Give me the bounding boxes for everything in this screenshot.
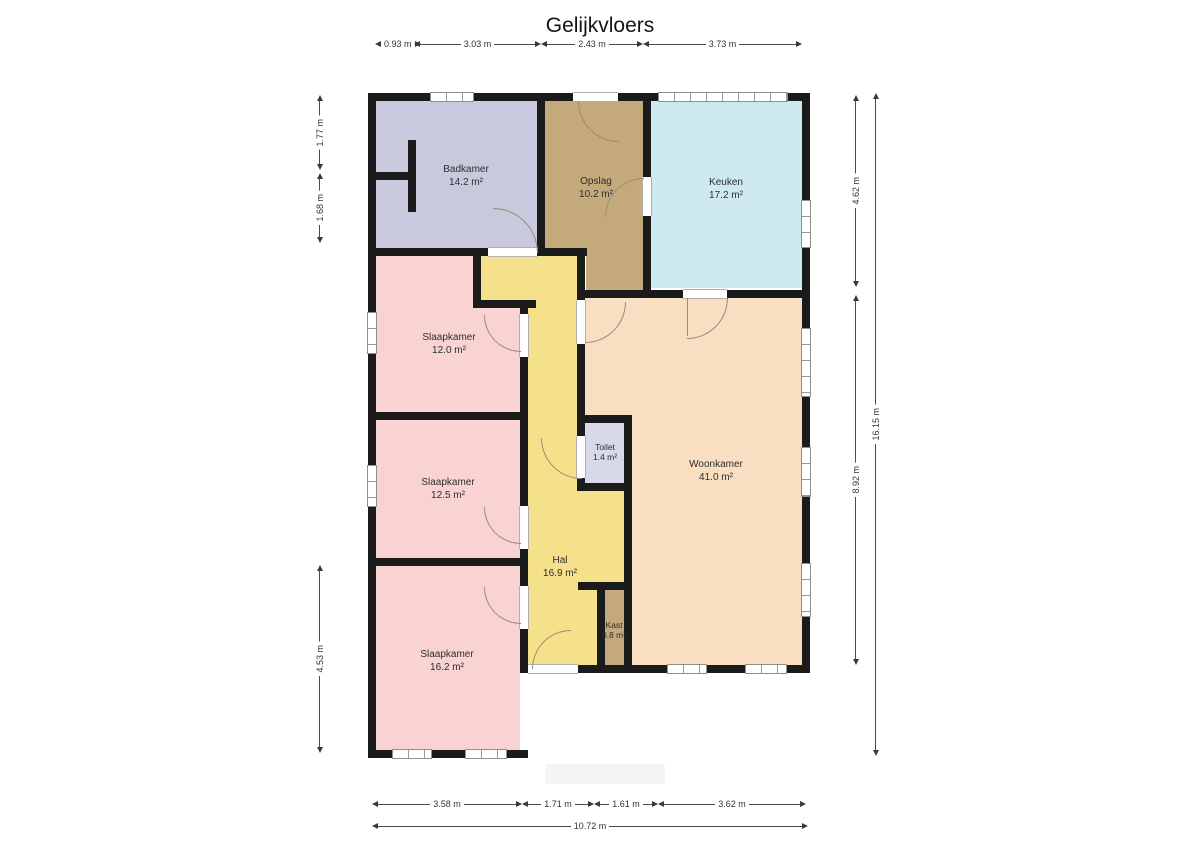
watermark bbox=[545, 764, 665, 784]
dimension-bottom-4: 3.62 m bbox=[658, 799, 806, 809]
door-panel-keuken-woonkamer bbox=[687, 298, 688, 336]
dimension-bottom-2: 1.71 m bbox=[522, 799, 594, 809]
dimension-top-4: 3.73 m bbox=[643, 39, 802, 49]
dimension-bottom-3: 1.61 m bbox=[594, 799, 658, 809]
room-label-opslag: Opslag 10.2 m² bbox=[579, 175, 613, 201]
room-label-slaapkamer-3: Slaapkamer 16.2 m² bbox=[420, 648, 473, 674]
dimension-top-3: 2.43 m bbox=[541, 39, 643, 49]
room-label-slaapkamer-1: Slaapkamer 12.0 m² bbox=[422, 331, 475, 357]
window-woonkamer-right-1 bbox=[801, 328, 811, 397]
room-area: 17.2 m² bbox=[709, 189, 743, 202]
window-slaapkamer3-bottom-2 bbox=[465, 749, 507, 759]
room-label-toilet: Toilet 1.4 m² bbox=[593, 442, 617, 462]
room-area: 10.2 m² bbox=[579, 188, 613, 201]
dimension-bottom-1: 3.58 m bbox=[372, 799, 522, 809]
room-slaapkamer-1 bbox=[376, 256, 473, 308]
room-name: Hal bbox=[543, 554, 577, 567]
wall-slaapkamer2-3 bbox=[368, 558, 528, 566]
window-woonkamer-bottom-2 bbox=[745, 664, 787, 674]
room-area: 12.5 m² bbox=[421, 489, 474, 502]
dimension-top-2: 3.03 m bbox=[414, 39, 541, 49]
room-label-woonkamer: Woonkamer 41.0 m² bbox=[689, 458, 743, 484]
wall-badkamer-opslag bbox=[537, 93, 545, 256]
window-woonkamer-bottom-1 bbox=[667, 664, 707, 674]
room-area: 1.4 m² bbox=[593, 452, 617, 462]
room-name: Toilet bbox=[593, 442, 617, 452]
room-area: 16.9 m² bbox=[543, 567, 577, 580]
room-name: Woonkamer bbox=[689, 458, 743, 471]
window-keuken-right bbox=[801, 200, 811, 248]
room-hal bbox=[481, 256, 577, 302]
room-area: 14.2 m² bbox=[443, 176, 489, 189]
dimension-right-1: 4.62 m bbox=[850, 95, 861, 287]
room-area: 16.2 m² bbox=[420, 661, 473, 674]
room-label-slaapkamer-2: Slaapkamer 12.5 m² bbox=[421, 476, 474, 502]
dimension-bottom-total: 10.72 m bbox=[372, 821, 808, 831]
room-opslag bbox=[586, 253, 643, 290]
room-name: Badkamer bbox=[443, 163, 489, 176]
dimension-left-2: 1.68 m bbox=[314, 173, 325, 243]
wall-kast-top bbox=[578, 582, 632, 590]
dimension-left-1: 1.77 m bbox=[314, 95, 325, 170]
room-name: Kast bbox=[602, 620, 626, 630]
wall-outer-left bbox=[368, 93, 376, 758]
room-area: 12.0 m² bbox=[422, 344, 475, 357]
dimension-right-2: 8.92 m bbox=[850, 295, 861, 665]
window-slaapkamer3-bottom-1 bbox=[392, 749, 432, 759]
dimension-left-3: 4.53 m bbox=[314, 565, 325, 753]
wall-badkamer-partition-v bbox=[408, 140, 416, 212]
window-slaapkamer1-left bbox=[367, 312, 377, 354]
room-label-badkamer: Badkamer 14.2 m² bbox=[443, 163, 489, 189]
window-woonkamer-right-2 bbox=[801, 447, 811, 497]
window-keuken-top bbox=[658, 92, 788, 102]
room-label-hal: Hal 16.9 m² bbox=[543, 554, 577, 580]
wall-badkamer-partition-h bbox=[368, 172, 408, 180]
dimension-top-1: 0.93 m bbox=[375, 39, 414, 49]
room-name: Slaapkamer bbox=[421, 476, 474, 489]
room-label-keuken: Keuken 17.2 m² bbox=[709, 176, 743, 202]
room-area: 0.8 m² bbox=[602, 630, 626, 640]
room-name: Opslag bbox=[579, 175, 613, 188]
room-woonkamer bbox=[632, 415, 802, 665]
page-title: Gelijkvloers bbox=[0, 14, 1200, 38]
room-label-kast: Kast 0.8 m² bbox=[602, 620, 626, 640]
window-slaapkamer2-left bbox=[367, 465, 377, 507]
window-woonkamer-right-3 bbox=[801, 563, 811, 617]
floor-plan-page: Gelijkvloers bbox=[0, 0, 1200, 849]
window-badkamer-top bbox=[430, 92, 474, 102]
room-name: Slaapkamer bbox=[422, 331, 475, 344]
room-name: Keuken bbox=[709, 176, 743, 189]
room-name: Slaapkamer bbox=[420, 648, 473, 661]
room-area: 41.0 m² bbox=[689, 471, 743, 484]
wall-slaapkamer1-2 bbox=[368, 412, 528, 420]
dimension-right-total: 16.15 m bbox=[870, 93, 881, 756]
